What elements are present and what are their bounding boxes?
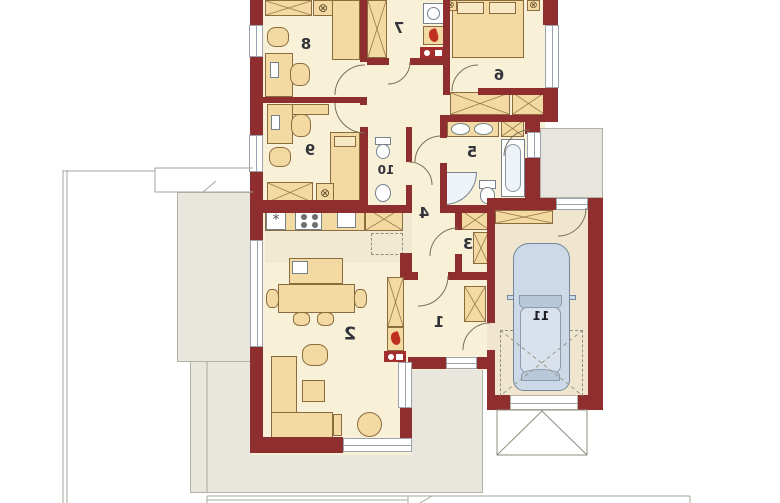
pillow-room6-right <box>489 2 516 14</box>
coffee-table <box>302 380 325 402</box>
bathtub <box>501 139 525 197</box>
wall <box>250 57 263 135</box>
wall <box>440 115 447 138</box>
room-label-6: 6 <box>494 66 504 84</box>
garage-shelving <box>495 210 553 224</box>
fireplace-cabinet <box>387 277 404 327</box>
chair-room8 <box>267 27 289 47</box>
fireplace-hearth <box>384 351 406 362</box>
wall <box>406 127 412 162</box>
dining-chair-bottom1 <box>293 312 310 326</box>
garage-canopy <box>497 410 587 455</box>
wall <box>440 163 447 210</box>
wall <box>588 198 603 410</box>
wall <box>543 88 558 122</box>
entry-door-porch <box>527 132 541 158</box>
washbasin-right <box>474 123 493 135</box>
lamp-icon: ⊗ <box>320 187 330 199</box>
armchair-room9 <box>269 147 291 167</box>
sofa-left-arm <box>271 356 297 418</box>
washbasin-room10 <box>375 184 391 202</box>
pouf <box>357 412 382 437</box>
wall <box>410 58 447 65</box>
wardrobe-room8 <box>265 0 312 16</box>
window-room9 <box>249 135 263 172</box>
wall <box>447 115 545 122</box>
wardrobe-room6-a <box>450 92 510 115</box>
washbasin-left <box>451 123 470 135</box>
armchair-living <box>302 344 328 366</box>
desk-monitor-room8 <box>270 62 279 78</box>
wall <box>443 0 450 95</box>
wall <box>360 0 367 62</box>
wall <box>487 395 510 410</box>
dining-chair-right <box>354 289 367 308</box>
terrace-left <box>177 192 253 362</box>
lamp-icon: ⊗ <box>318 2 328 14</box>
window-room6 <box>545 25 559 88</box>
wardrobe-vestibule <box>464 286 486 322</box>
wall <box>250 0 263 25</box>
entrance-porch <box>540 128 603 198</box>
room-label-3: 3 <box>463 235 473 253</box>
wall <box>250 437 343 453</box>
wall <box>455 254 462 274</box>
toilet-room10 <box>375 137 391 159</box>
floor-plan-canvas: ⊗ ⊗ ⊗ ⊗ * <box>0 0 780 503</box>
room-label-5: 5 <box>467 143 477 161</box>
room-label-9: 9 <box>305 141 315 159</box>
wall <box>578 395 603 410</box>
room-label-4: 4 <box>419 204 429 222</box>
window-living-right <box>398 362 412 408</box>
stove <box>295 210 322 230</box>
window-living-left <box>250 240 263 347</box>
wall <box>408 357 446 369</box>
attic-ladder <box>371 233 403 255</box>
wall <box>250 347 263 439</box>
bathroom-cabinet <box>501 120 524 137</box>
garage-side-door <box>556 198 588 210</box>
wall <box>250 200 366 213</box>
wall <box>455 213 462 230</box>
lamp-symbol-room8: ⊗ <box>313 0 333 16</box>
office-chair-room9 <box>291 114 311 137</box>
dining-chair-left <box>266 289 279 308</box>
car-mirror-right <box>569 295 576 300</box>
car-mirror-left <box>507 295 514 300</box>
room-label-7: 7 <box>394 19 404 37</box>
wall <box>360 127 368 208</box>
window-living-bottom <box>343 438 412 452</box>
wall <box>478 88 545 95</box>
front-door <box>446 357 477 369</box>
room-label-1: 1 <box>434 313 444 331</box>
island-sink <box>292 261 308 274</box>
desk-monitor-room9 <box>271 115 280 130</box>
sofa-armrest <box>333 414 342 436</box>
room-label-2: 2 <box>344 324 357 345</box>
pillow-room9 <box>334 136 356 147</box>
wall <box>360 205 412 213</box>
wall <box>367 58 389 65</box>
wall <box>525 158 540 198</box>
pillow-room6-left <box>457 2 484 14</box>
wall <box>252 97 362 103</box>
room-label-8: 8 <box>301 35 311 53</box>
car-rear-window <box>521 369 560 381</box>
room-label-11: 11 <box>533 309 550 323</box>
wall <box>543 0 558 25</box>
wardrobe-closet3-top <box>461 210 489 230</box>
wall <box>487 210 495 323</box>
fridge-icon: * <box>273 213 280 227</box>
lamp-icon: ⊗ <box>529 1 537 11</box>
dining-table <box>278 284 355 313</box>
cabinet-room8 <box>332 0 360 60</box>
washing-machine-drum <box>427 7 440 20</box>
window-room8 <box>249 25 263 57</box>
nightstand-right-room6: ⊗ <box>527 0 540 11</box>
fridge: * <box>266 210 286 230</box>
office-chair-room8 <box>290 63 310 86</box>
wall <box>487 198 556 210</box>
wall <box>400 408 412 440</box>
wardrobe-room7 <box>367 0 387 58</box>
garage-gate <box>510 395 578 410</box>
wardrobe-room6-b <box>512 92 545 115</box>
sofa-bottom <box>271 412 333 438</box>
dining-chair-bottom2 <box>317 312 334 326</box>
room-label-10: 10 <box>378 163 395 177</box>
